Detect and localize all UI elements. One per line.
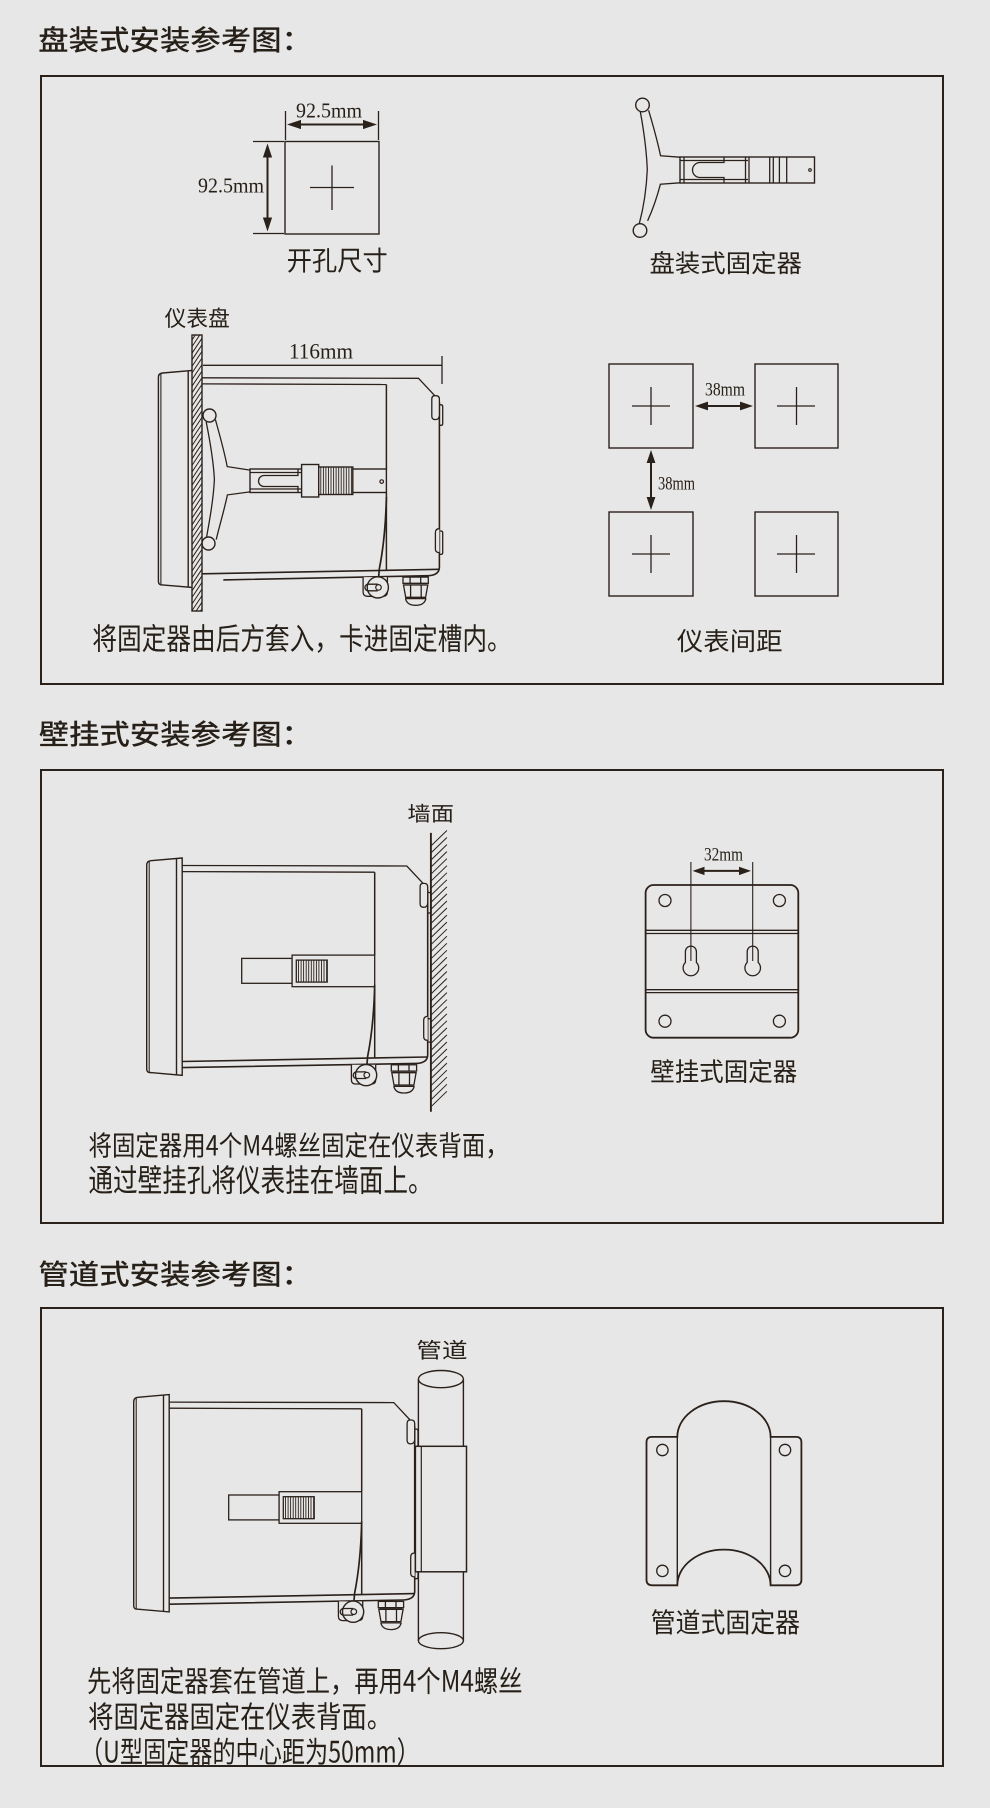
svg-text:92.5mm: 92.5mm [198,174,264,198]
svg-text:32mm: 32mm [704,845,743,866]
svg-text:92.5mm: 92.5mm [296,99,362,123]
svg-text:38mm: 38mm [658,474,695,495]
svg-text:38mm: 38mm [705,380,745,401]
svg-text:116mm: 116mm [289,339,353,364]
